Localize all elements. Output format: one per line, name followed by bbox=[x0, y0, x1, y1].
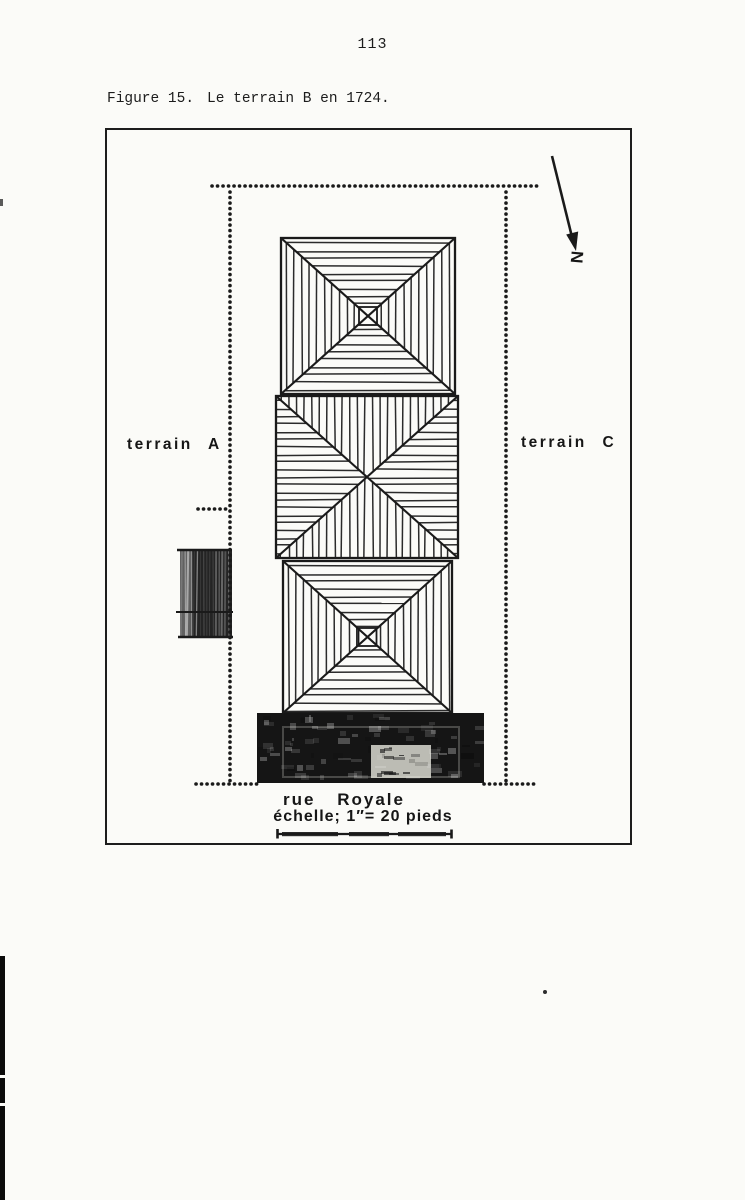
north-arrow-icon bbox=[552, 156, 578, 251]
label-scale-text: échelle; 1″= 20 pieds bbox=[273, 808, 452, 826]
roof-section-middle bbox=[273, 393, 461, 561]
scan-speck bbox=[543, 990, 547, 994]
scan-bar-gap bbox=[0, 1103, 5, 1106]
side-structure bbox=[176, 550, 233, 637]
scan-artifact-bar bbox=[0, 956, 5, 1200]
label-terrain-c: terrain C bbox=[521, 434, 616, 452]
scan-bar-gap bbox=[0, 1075, 5, 1078]
roof-section-bottom bbox=[280, 558, 455, 716]
roof-section-top bbox=[278, 235, 458, 397]
scale-bar bbox=[277, 829, 452, 839]
base-structure bbox=[257, 713, 485, 783]
label-rue-royale: rue Royale bbox=[283, 790, 405, 810]
north-label: N bbox=[566, 250, 587, 264]
site-plan-svg bbox=[0, 0, 745, 1200]
label-terrain-a: terrain A bbox=[127, 436, 222, 454]
scan-edge-mark bbox=[0, 199, 3, 206]
